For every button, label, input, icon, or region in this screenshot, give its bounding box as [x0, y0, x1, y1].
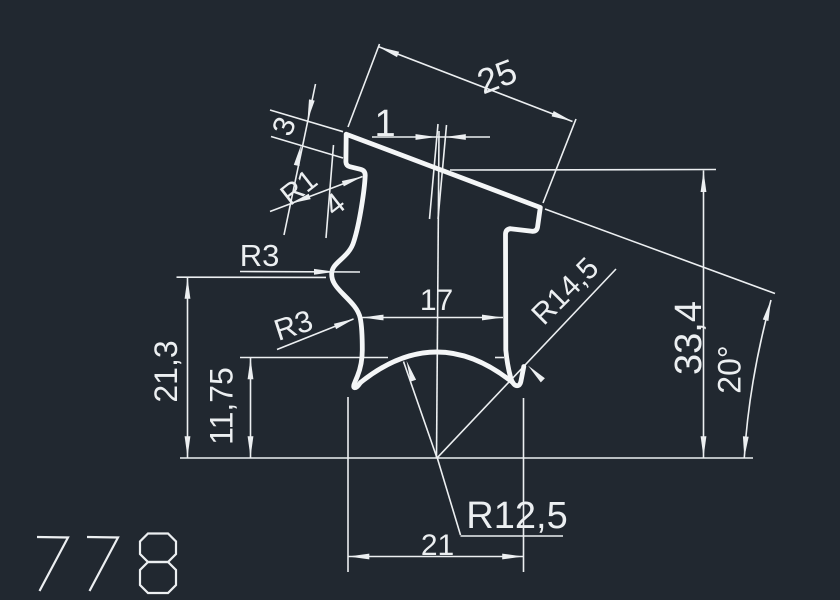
svg-text:R3: R3	[240, 238, 280, 273]
svg-text:21,3: 21,3	[148, 340, 184, 402]
svg-text:17: 17	[420, 284, 453, 317]
svg-text:R12,5: R12,5	[466, 495, 567, 537]
svg-text:1: 1	[374, 103, 395, 145]
svg-text:11,75: 11,75	[203, 367, 239, 445]
svg-text:33,4: 33,4	[668, 301, 710, 375]
svg-text:20°: 20°	[711, 345, 747, 393]
svg-text:21: 21	[421, 529, 454, 562]
